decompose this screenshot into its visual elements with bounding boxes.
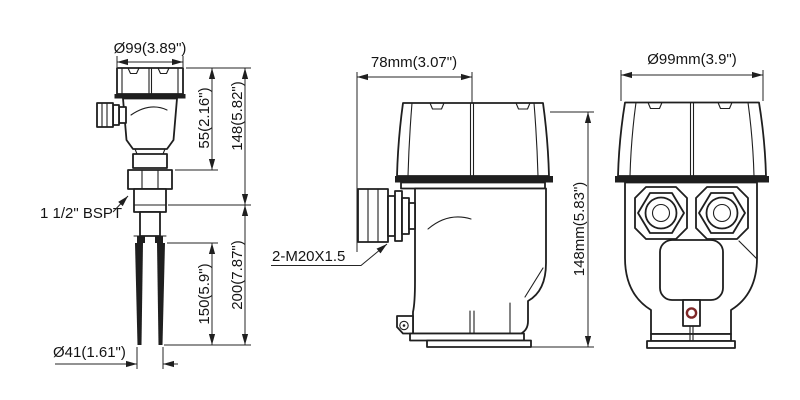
housing-body: [123, 99, 177, 169]
cable-gland-left: [635, 187, 687, 239]
dim-label-housing-height: 148mm(5.83"): [571, 182, 588, 277]
housing-side-view: 78mm(3.07"): [271, 54, 594, 347]
housing-front-view: Ø99mm(3.9"): [615, 51, 769, 348]
thread-callout: 1 1/2" BSPT: [40, 196, 128, 222]
housing-cap: [395, 103, 553, 189]
fork-sensor-side-view: Ø99(3.89"): [40, 40, 251, 369]
dim-label-head-total: 148(5.82"): [229, 81, 246, 151]
dim-label-housing-height: 55(2.16"): [196, 87, 213, 148]
housing-cap: [615, 103, 769, 183]
cable-gland: [358, 189, 415, 242]
dimension-housing-diameter: Ø99mm(3.9"): [621, 51, 763, 101]
dim-label-fork-width: Ø41(1.61"): [53, 344, 126, 361]
gland-label: 2-M20X1.5: [272, 248, 345, 265]
dimension-insert-length: 200(7.87"): [229, 205, 246, 345]
dimension-fork-width: Ø41(1.61"): [53, 344, 178, 369]
dim-label-housing-diameter: Ø99mm(3.9"): [647, 51, 737, 68]
cable-gland: [97, 103, 126, 127]
dim-label-housing-width: 78mm(3.07"): [371, 54, 457, 71]
housing-cap: [115, 68, 186, 99]
dimension-top-diameter: Ø99(3.89"): [114, 40, 187, 67]
dim-label-insert-length: 200(7.87"): [229, 240, 246, 310]
cable-gland-right: [696, 187, 748, 239]
technical-drawing: Ø99(3.89"): [0, 0, 800, 400]
thread-label: 1 1/2" BSPT: [40, 205, 122, 222]
dimension-head-total: 148(5.82"): [229, 68, 246, 205]
drawing-canvas: Ø99(3.89"): [0, 0, 800, 400]
process-connection: [128, 170, 172, 236]
dimension-fork-length: 150(5.9"): [196, 243, 213, 345]
dim-label-top-diameter: Ø99(3.89"): [114, 40, 187, 57]
fork-prongs: [134, 236, 166, 345]
dimension-housing-height: 55(2.16"): [196, 68, 213, 170]
dim-label-fork-length: 150(5.9"): [196, 263, 213, 324]
housing-body: [397, 189, 546, 348]
gland-callout: 2-M20X1.5: [271, 244, 387, 266]
grommet-dot: [687, 308, 696, 317]
